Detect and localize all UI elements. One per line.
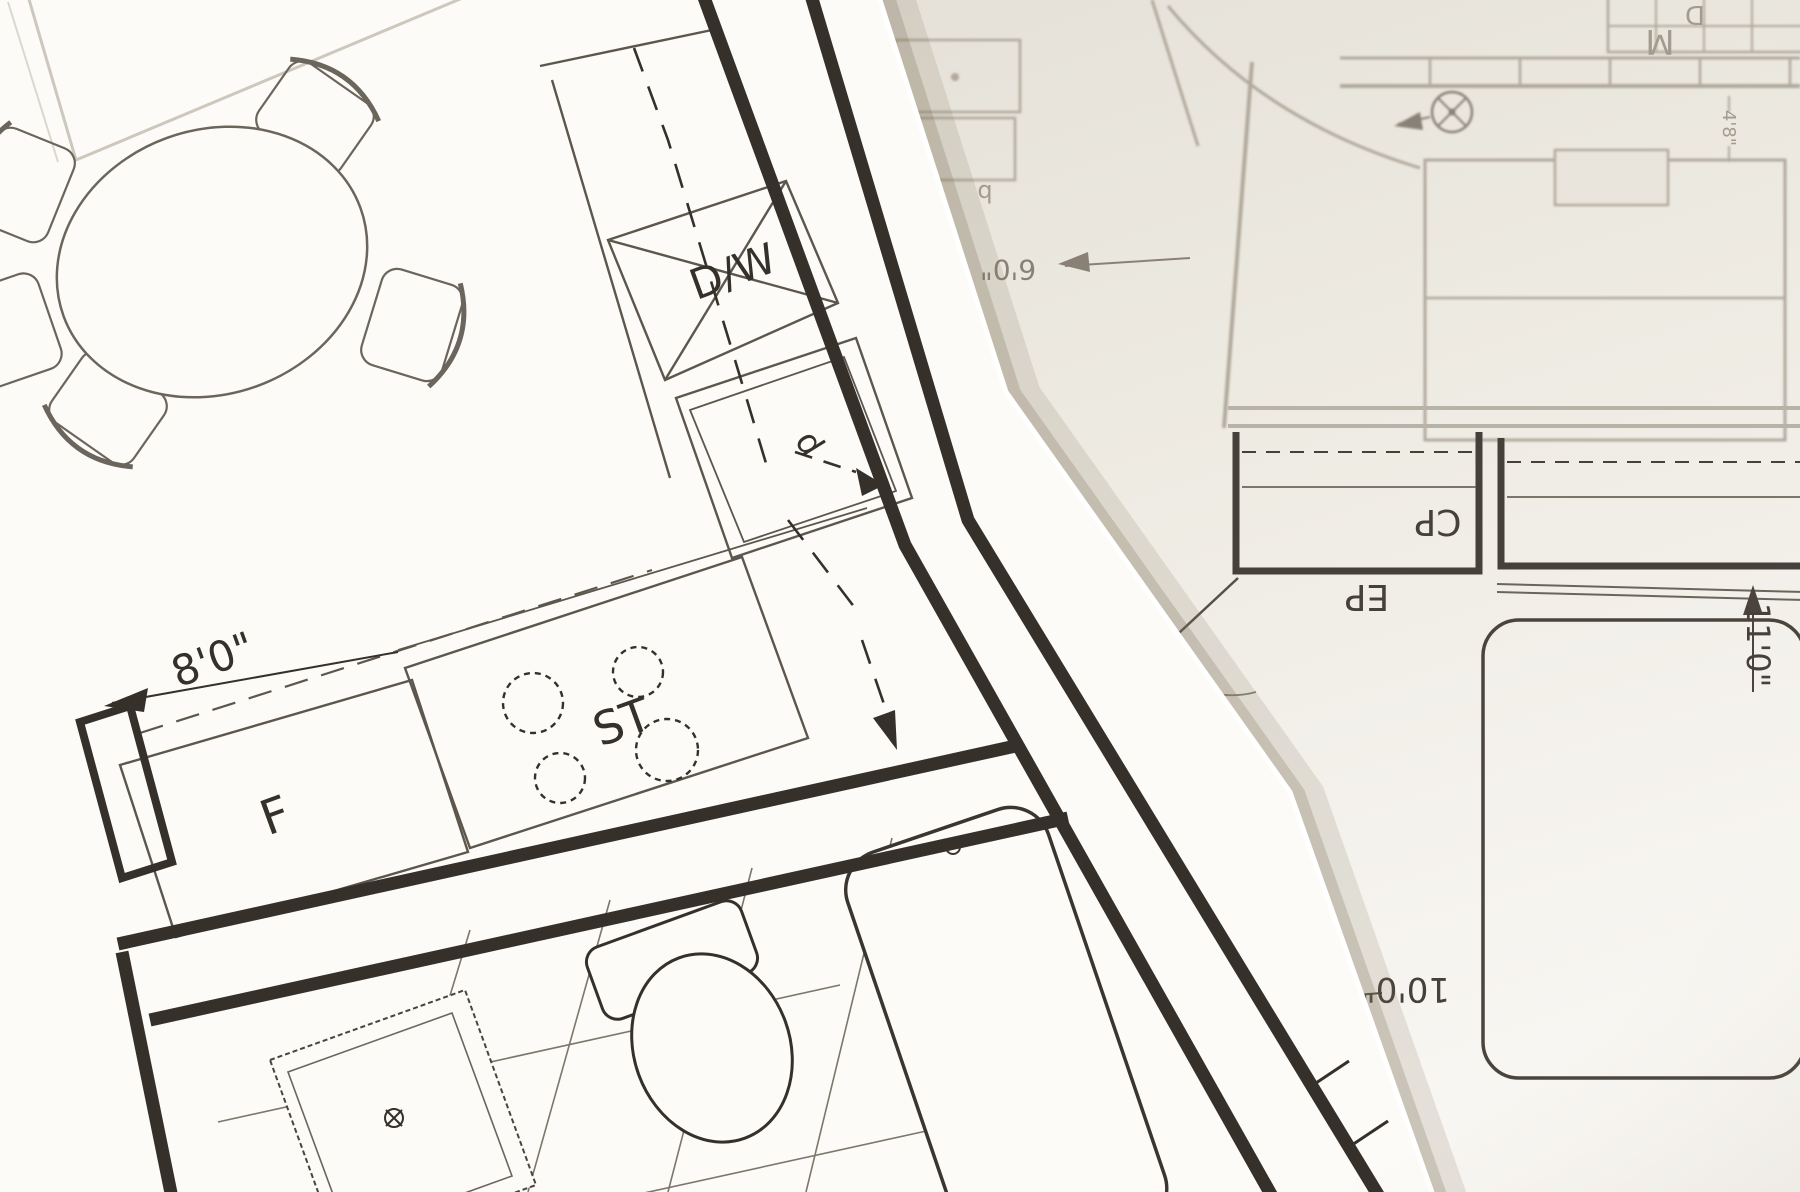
blueprint-photo: M D b 4'8" 6'0": [0, 0, 1800, 1192]
floor-plan-scene: M D b 4'8" 6'0": [0, 0, 1800, 1192]
vignette: [0, 0, 1800, 1192]
